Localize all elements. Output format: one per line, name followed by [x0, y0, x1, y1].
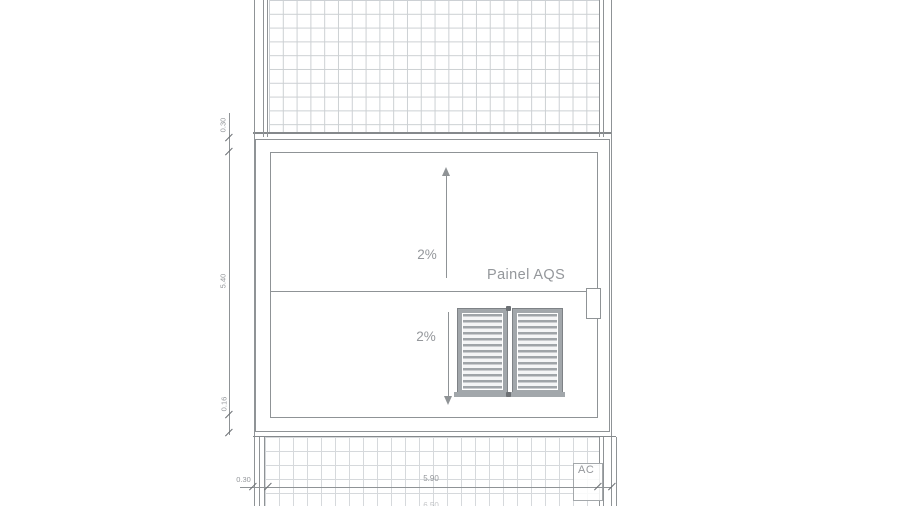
- slope-arrow-up-shaft: [446, 176, 447, 278]
- upper-right-wall-line-b: [603, 0, 604, 137]
- left-dim-top-value: 0.30: [220, 112, 228, 137]
- lower-terrace-tile-hatch: [265, 437, 599, 506]
- upper-right-wall-line-a: [599, 0, 600, 137]
- aqs-panel-left-slats: [463, 314, 502, 389]
- slope-arrow-up-head: [442, 167, 450, 176]
- ac-unit-box: AC: [573, 463, 603, 501]
- bottom-dim-total-value-clipped: 6.50: [413, 502, 449, 506]
- upper-left-wall-line-a: [263, 0, 264, 137]
- upper-terrace-tile-hatch: [269, 0, 599, 133]
- bottom-dimension-line: [240, 487, 612, 488]
- slope-label-upper: 2%: [405, 247, 449, 262]
- panel-aqs-label: Painel AQS: [487, 267, 565, 283]
- slope-arrow-down-head: [444, 396, 452, 405]
- roof-plan-canvas: 2% 2% Painel AQS AC 0.30 5.90 6.50 0.30 …: [0, 0, 900, 506]
- left-dimension-line: [229, 113, 230, 435]
- upper-left-wall-line-b: [267, 0, 268, 137]
- aqs-panel-hinge-top: [506, 306, 511, 311]
- left-dim-middle-value: 5.40: [220, 269, 228, 294]
- aqs-panel-left: [457, 308, 508, 395]
- bottom-dim-left-value: 0.30: [231, 476, 256, 484]
- lower-left-wall-line-b: [264, 437, 265, 506]
- aqs-panel-right: [512, 308, 563, 395]
- slope-arrow-down-shaft: [448, 312, 449, 397]
- upper-terrace-bottom-edge: [253, 132, 612, 134]
- aqs-panel-hinge-bottom: [506, 392, 511, 397]
- aqs-panel-right-slats: [518, 314, 557, 389]
- left-dim-tick-4: [225, 429, 233, 437]
- bottom-dim-main-value: 5.90: [413, 475, 449, 483]
- lower-left-wall-line-a: [259, 437, 260, 506]
- left-dim-bottom-value: 0.16: [220, 392, 228, 417]
- slope-label-lower: 2%: [404, 329, 448, 344]
- right-outer-wall-line: [611, 0, 612, 506]
- lower-right-wall-line-c: [616, 437, 617, 506]
- roof-ridge-divider-line: [271, 291, 586, 292]
- ac-unit-label: AC: [578, 464, 594, 476]
- roof-drain-box: [586, 288, 601, 319]
- lower-right-wall-line-b: [603, 437, 604, 506]
